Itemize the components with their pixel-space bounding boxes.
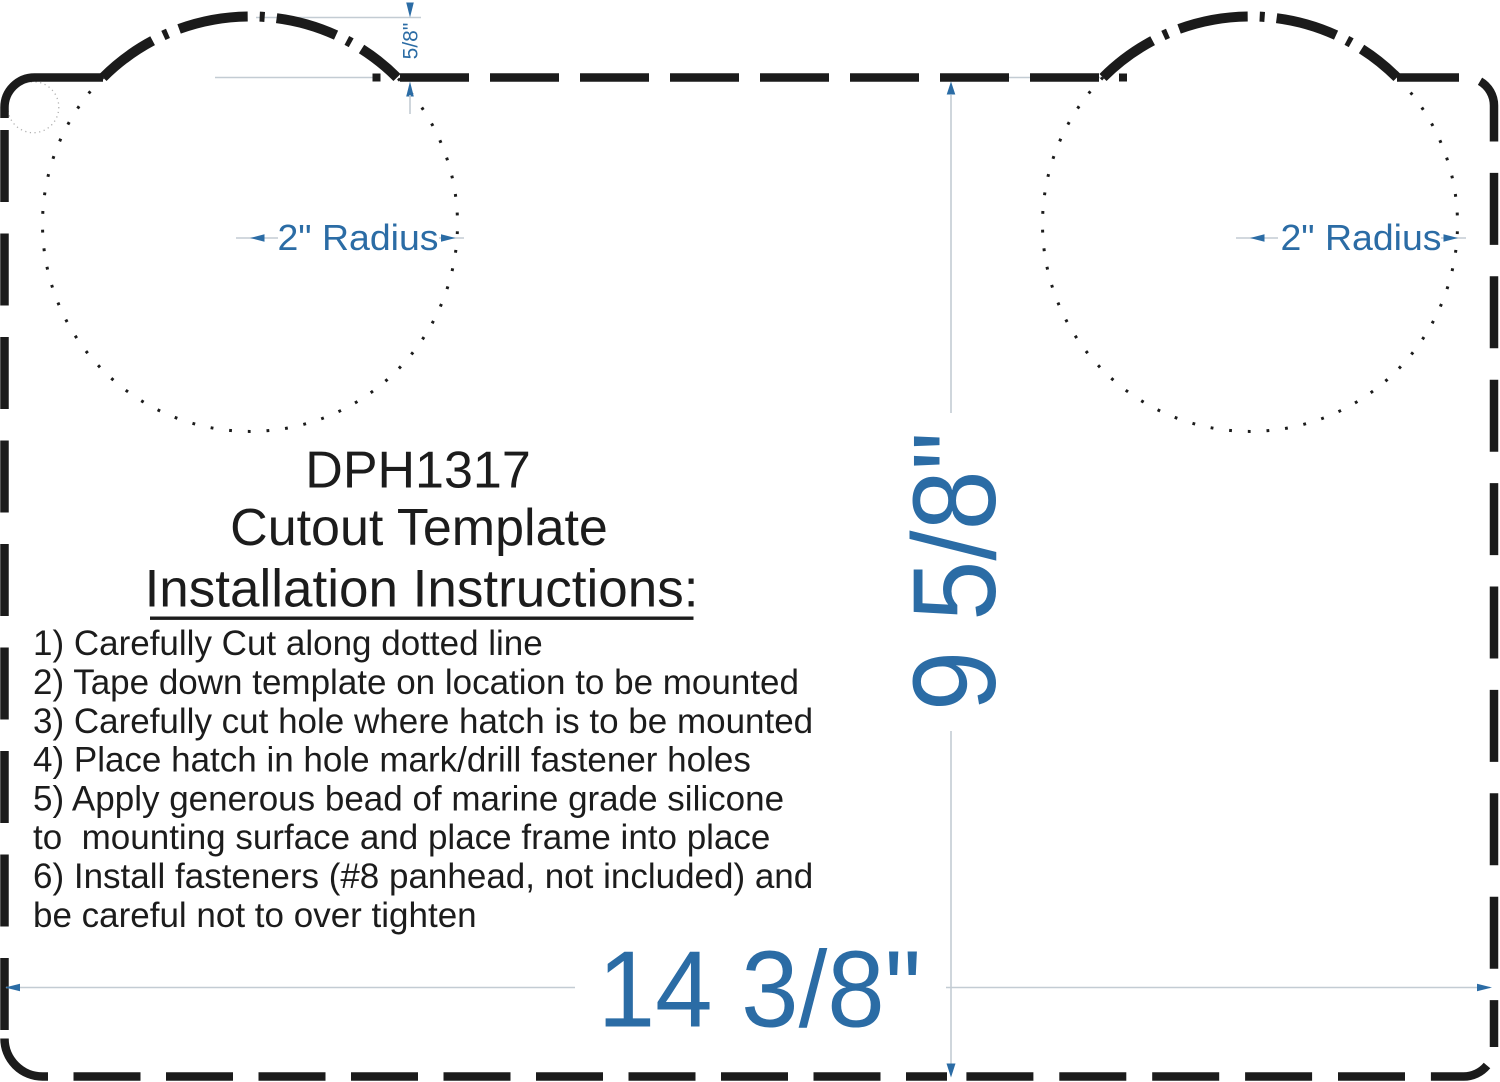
svg-text:Cutout Template: Cutout Template — [230, 499, 608, 557]
svg-text:3) Carefully cut hole where ha: 3) Carefully cut hole where hatch is to … — [33, 702, 813, 741]
svg-text:5/8": 5/8" — [400, 23, 423, 60]
svg-text:2) Tape down template on locat: 2) Tape down template on location to be … — [33, 663, 799, 702]
svg-text:2" Radius: 2" Radius — [277, 218, 438, 258]
svg-text:5) Apply generous bead of mari: 5) Apply generous bead of marine grade s… — [33, 780, 784, 819]
svg-text:Installation Instructions:: Installation Instructions: — [145, 560, 699, 619]
svg-text:4) Place hatch in hole mark/dr: 4) Place hatch in hole mark/drill fasten… — [33, 741, 751, 780]
svg-text:to mounting surface and place: to mounting surface and place frame into… — [33, 818, 770, 857]
svg-text:9 5/8": 9 5/8" — [889, 432, 1021, 711]
svg-text:6) Install fasteners (#8 panhe: 6) Install fasteners (#8 panhead, not in… — [33, 857, 813, 896]
svg-text:1) Carefully Cut along dotted: 1) Carefully Cut along dotted line — [33, 624, 543, 663]
svg-text:DPH1317: DPH1317 — [305, 442, 530, 500]
svg-text:2" Radius: 2" Radius — [1280, 218, 1441, 258]
svg-text:14 3/8": 14 3/8" — [598, 929, 922, 1050]
svg-text:be careful not to over tighten: be careful not to over tighten — [33, 896, 477, 935]
